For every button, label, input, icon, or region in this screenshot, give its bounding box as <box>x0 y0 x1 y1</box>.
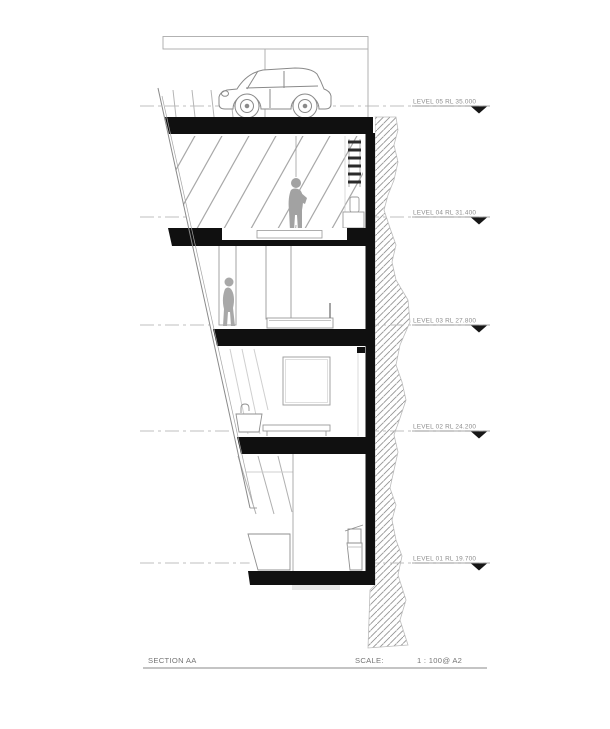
picture-frame <box>283 357 330 405</box>
level-marker-03: LEVEL 03 RL 27.800 <box>412 318 490 333</box>
scale-value: 1 : 100@ A2 <box>417 656 462 665</box>
datum-triangle-icon <box>471 432 487 439</box>
level-label-03: LEVEL 03 RL 27.800 <box>413 318 476 325</box>
slab-level-03 <box>213 329 373 346</box>
level-marker-02: LEVEL 02 RL 24.200 <box>412 424 490 439</box>
title-block: SECTION AA SCALE: 1 : 100@ A2 <box>143 656 487 668</box>
sunken-tub <box>222 228 347 240</box>
level-label-01: LEVEL 01 RL 19.700 <box>413 556 476 563</box>
datum-triangle-icon <box>471 326 487 333</box>
section-title: SECTION AA <box>148 656 197 665</box>
level-marker-01: LEVEL 01 RL 19.700 <box>412 556 490 571</box>
level-marker-05: LEVEL 05 RL 35.000 <box>412 99 490 114</box>
section-drawing: LEVEL 05 RL 35.000 LEVEL 04 RL 31.400 LE… <box>0 0 610 729</box>
base-plinth <box>292 585 340 590</box>
level-label-04: LEVEL 04 RL 31.400 <box>413 210 476 217</box>
scale-label: SCALE: <box>355 656 384 665</box>
datum-triangle-icon <box>471 218 487 225</box>
level-label-02: LEVEL 02 RL 24.200 <box>413 424 476 431</box>
level-label-05: LEVEL 05 RL 35.000 <box>413 99 476 106</box>
level-markers: LEVEL 05 RL 35.000 LEVEL 04 RL 31.400 LE… <box>412 99 490 571</box>
wall-nib <box>357 347 365 353</box>
datum-triangle-icon <box>471 107 487 114</box>
slab-level-05 <box>165 117 373 134</box>
slab-level-01 <box>248 571 373 585</box>
drawing-sheet: LEVEL 05 RL 35.000 LEVEL 04 RL 31.400 LE… <box>0 0 610 729</box>
rear-wall <box>366 133 376 585</box>
car-icon <box>219 68 331 118</box>
slab-level-02 <box>237 437 373 454</box>
level-marker-04: LEVEL 04 RL 31.400 <box>412 210 490 225</box>
datum-triangle-icon <box>471 564 487 571</box>
